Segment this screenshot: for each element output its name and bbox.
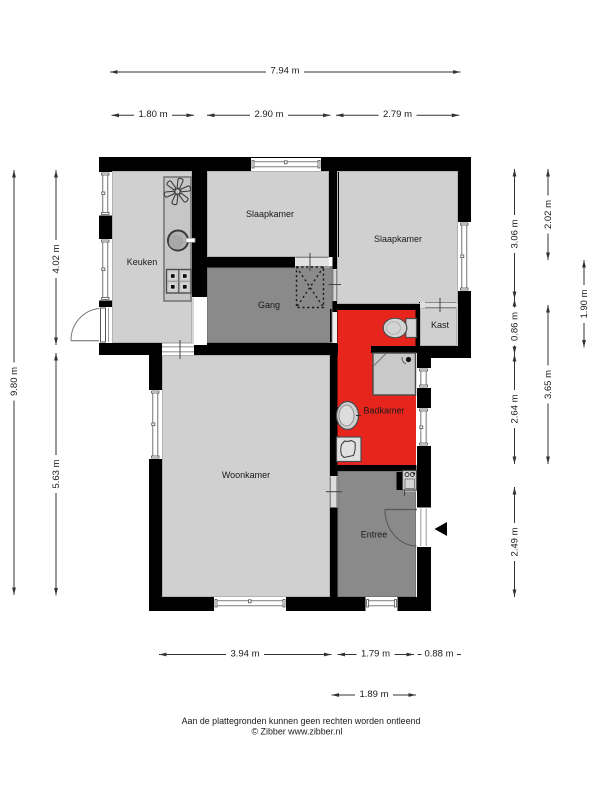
svg-text:1.79 m: 1.79 m: [361, 648, 390, 659]
svg-text:2.64 m: 2.64 m: [510, 394, 521, 423]
svg-text:2.49 m: 2.49 m: [510, 527, 521, 556]
svg-text:© Zibber www.zibber.nl: © Zibber www.zibber.nl: [252, 727, 343, 737]
svg-text:3.94 m: 3.94 m: [230, 648, 259, 659]
svg-text:2.79 m: 2.79 m: [383, 109, 412, 120]
svg-text:Aan de plattegronden kunnen ge: Aan de plattegronden kunnen geen rechten…: [182, 716, 421, 726]
svg-text:Entree: Entree: [361, 530, 388, 540]
svg-text:Keuken: Keuken: [127, 257, 158, 267]
svg-text:1.90 m: 1.90 m: [579, 289, 590, 318]
svg-text:Gang: Gang: [258, 300, 280, 310]
svg-text:4.02 m: 4.02 m: [51, 244, 62, 273]
svg-text:Kast: Kast: [431, 320, 450, 330]
svg-text:7.94 m: 7.94 m: [270, 66, 299, 77]
svg-text:3.65 m: 3.65 m: [543, 370, 554, 399]
svg-text:1.80 m: 1.80 m: [138, 109, 167, 120]
svg-text:2.02 m: 2.02 m: [543, 200, 554, 229]
svg-text:5.63 m: 5.63 m: [51, 459, 62, 488]
svg-text:2.90 m: 2.90 m: [254, 109, 283, 120]
svg-text:0.86 m: 0.86 m: [510, 312, 521, 341]
svg-text:9.80 m: 9.80 m: [9, 367, 20, 396]
svg-text:3.06 m: 3.06 m: [510, 219, 521, 248]
svg-text:Badkamer: Badkamer: [363, 406, 404, 416]
svg-text:Slaapkamer: Slaapkamer: [374, 234, 422, 244]
svg-text:Woonkamer: Woonkamer: [222, 470, 270, 480]
svg-text:1.89 m: 1.89 m: [359, 689, 388, 700]
svg-text:Slaapkamer: Slaapkamer: [246, 209, 294, 219]
svg-text:0.88 m: 0.88 m: [424, 648, 453, 659]
